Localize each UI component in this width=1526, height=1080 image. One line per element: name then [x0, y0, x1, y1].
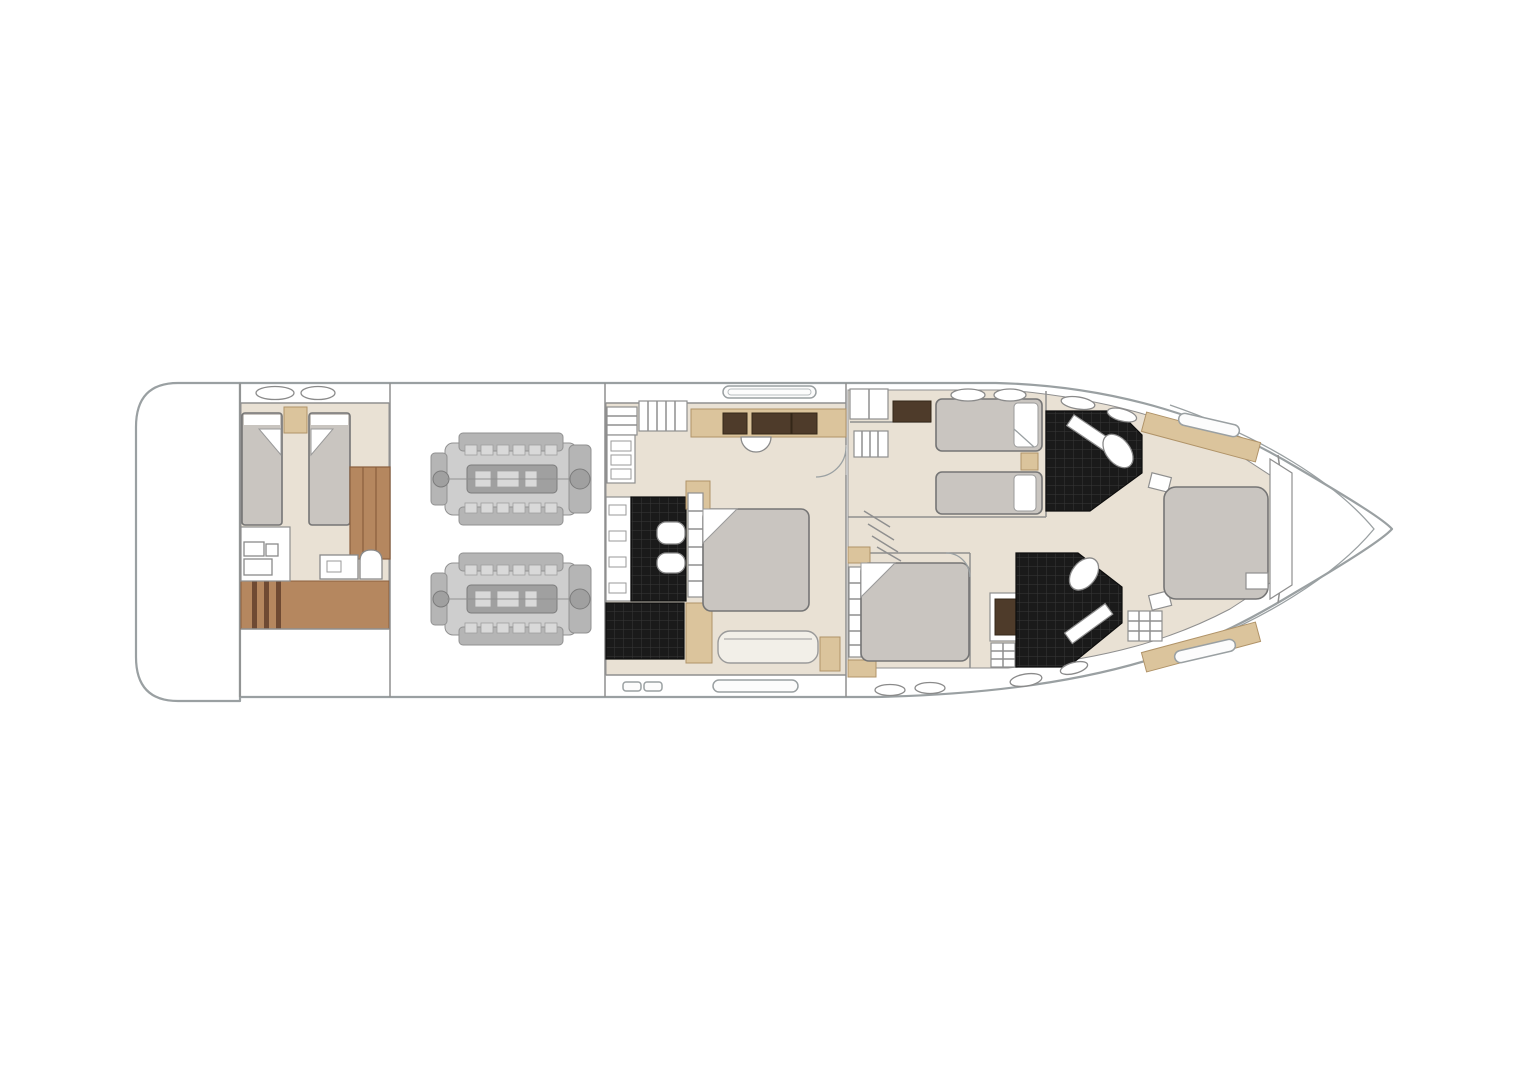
twin-sink — [657, 553, 685, 573]
joinery-block — [686, 603, 712, 663]
page: { "page": { "background": "#ffffff", "wi… — [0, 0, 1526, 1080]
crew-head-compartment — [241, 527, 290, 581]
crew-wood-floor — [241, 581, 389, 629]
bed-headboard — [849, 567, 861, 657]
double-bed — [703, 509, 809, 611]
wardrobe — [893, 401, 931, 422]
nightstand — [1021, 453, 1038, 470]
deck-hatch — [875, 685, 905, 696]
twin-berth-upper — [936, 399, 1042, 451]
hull-window — [723, 386, 816, 398]
crew-shower — [360, 550, 382, 579]
toilet — [244, 542, 264, 556]
hull-window-small — [644, 682, 662, 691]
joinery-block — [848, 547, 870, 563]
sink — [244, 559, 272, 575]
tiled-floor — [631, 497, 686, 601]
drawer-unit — [991, 643, 1015, 667]
ensuite-bathroom — [606, 497, 686, 659]
deck-hatch — [994, 389, 1026, 401]
closet — [850, 389, 888, 419]
shower-stall — [606, 603, 684, 659]
headboard-panel — [1270, 459, 1292, 599]
twin-berth-lower — [936, 472, 1042, 514]
joinery-block — [848, 660, 876, 677]
shelving-unit — [607, 435, 635, 483]
drawer-unit-forward — [1128, 611, 1162, 641]
bed-step — [1246, 573, 1268, 589]
deck-hatch — [256, 387, 294, 400]
crew-berth-right — [309, 413, 350, 525]
twin-sink — [657, 522, 685, 544]
crew-step — [252, 581, 257, 629]
engine-lower — [431, 553, 591, 645]
engine-upper — [431, 433, 591, 525]
deck-hatch — [301, 387, 335, 400]
vanity-dresser — [691, 409, 846, 437]
double-bed — [861, 563, 969, 661]
cabinet — [266, 544, 278, 556]
hull-window — [713, 680, 798, 692]
crew-nightstand — [284, 407, 307, 433]
deck-hatch — [951, 389, 985, 401]
vanity-counter — [606, 497, 631, 601]
swim-platform — [136, 383, 240, 701]
crew-step — [276, 581, 281, 629]
hull-window-small — [623, 682, 641, 691]
bed-headboard — [688, 493, 703, 597]
crew-berth-left — [242, 413, 282, 525]
yacht-floor-plan — [128, 377, 1398, 707]
sofa — [718, 631, 818, 663]
joinery-block — [820, 637, 840, 671]
canvas — [0, 0, 1526, 1080]
companionway-ladder — [854, 431, 888, 457]
crew-wardrobe — [350, 467, 390, 559]
crew-step — [264, 581, 269, 629]
deck-hatch — [915, 683, 945, 694]
crew-sink-unit — [320, 555, 358, 579]
